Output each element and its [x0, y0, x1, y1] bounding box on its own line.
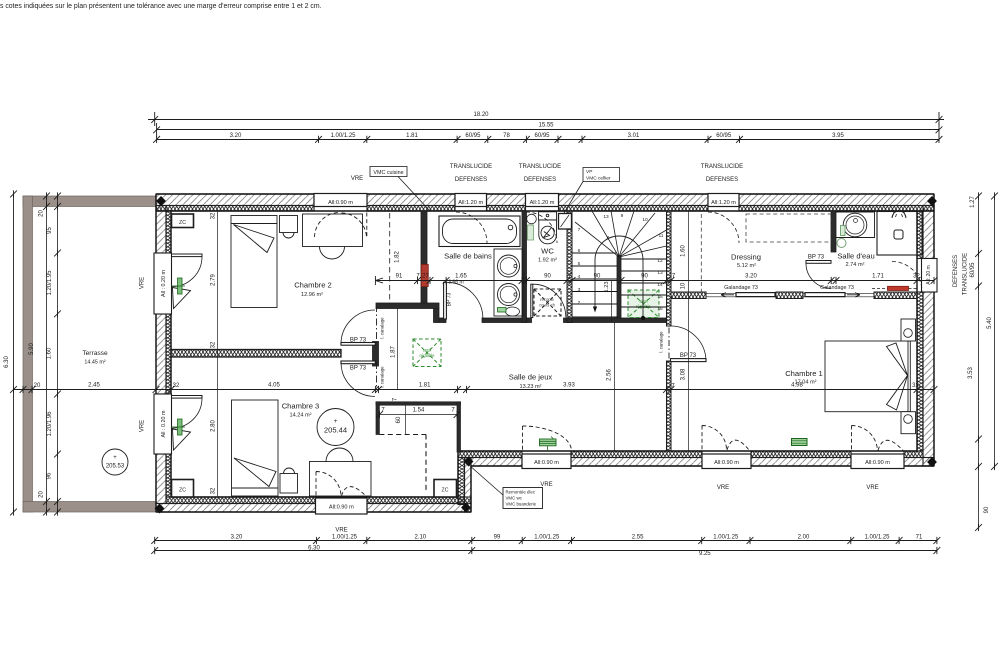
svg-text:Salle d'eau: Salle d'eau — [837, 252, 874, 261]
svg-text:ZC: ZC — [179, 220, 186, 226]
svg-text:95: 95 — [47, 227, 53, 234]
svg-text:All:1.20 m: All:1.20 m — [711, 200, 736, 206]
svg-text:20: 20 — [34, 383, 41, 389]
svg-text:1.71: 1.71 — [872, 274, 884, 280]
svg-text:5.12 m²: 5.12 m² — [737, 263, 756, 269]
svg-text:8: 8 — [607, 235, 610, 241]
svg-text:1.54: 1.54 — [413, 408, 425, 414]
svg-text:3.93: 3.93 — [563, 383, 575, 389]
svg-text:60/95: 60/95 — [465, 133, 481, 139]
svg-text:DEFENSES: DEFENSES — [455, 177, 487, 183]
svg-text:Salle de bains: Salle de bains — [444, 252, 492, 261]
svg-text:Remontée élec: Remontée élec — [506, 490, 536, 495]
svg-text:1.20/1.95: 1.20/1.95 — [47, 270, 53, 296]
svg-text:1.23: 1.23 — [604, 282, 610, 293]
svg-text:32: 32 — [211, 341, 217, 348]
svg-text:20: 20 — [39, 491, 45, 498]
svg-text:All:1.20 m: All:1.20 m — [458, 200, 483, 206]
svg-text:6.30: 6.30 — [4, 356, 10, 368]
svg-text:15.55: 15.55 — [538, 123, 554, 129]
svg-text:Chambre 1: Chambre 1 — [785, 369, 823, 378]
svg-text:ZC: ZC — [179, 488, 186, 494]
svg-text:13: 13 — [603, 214, 609, 220]
svg-text:10: 10 — [642, 217, 648, 223]
svg-text:1.00/1.25: 1.00/1.25 — [330, 133, 356, 139]
svg-text:TRANSLUCIDE: TRANSLUCIDE — [519, 164, 561, 170]
svg-text:TRANSLUCIDE: TRANSLUCIDE — [701, 164, 743, 170]
svg-text:32: 32 — [913, 274, 920, 280]
svg-text:1.82: 1.82 — [395, 251, 401, 263]
svg-text:90: 90 — [594, 274, 601, 280]
svg-text:réglable: réglable — [636, 304, 652, 309]
svg-text:VRE: VRE — [866, 485, 878, 491]
svg-text:91: 91 — [396, 274, 403, 280]
svg-text:All:0.90 m: All:0.90 m — [534, 460, 559, 466]
svg-text:All : 0.20 m: All : 0.20 m — [161, 270, 167, 297]
svg-text:réglable: réglable — [420, 353, 436, 358]
svg-text:VMC buanderie: VMC buanderie — [506, 502, 537, 507]
svg-text:1.00/1.25: 1.00/1.25 — [534, 535, 560, 541]
svg-text:5.40: 5.40 — [987, 317, 993, 329]
svg-text:13: 13 — [657, 270, 663, 276]
svg-text:3.95: 3.95 — [832, 133, 844, 139]
svg-text:14: 14 — [657, 282, 663, 288]
svg-text:2.56: 2.56 — [607, 369, 613, 381]
svg-text:3.20: 3.20 — [745, 274, 757, 280]
svg-text:60/95: 60/95 — [716, 133, 732, 139]
svg-text:All:0.90 m: All:0.90 m — [865, 460, 890, 466]
svg-text:l. canalage: l. canalage — [380, 366, 385, 388]
svg-text:DEFENSES: DEFENSES — [706, 177, 738, 183]
svg-text:4: 4 — [578, 274, 581, 280]
svg-text:seuil: seuil — [423, 348, 432, 353]
svg-text:All : 0.20 m: All : 0.20 m — [161, 410, 167, 437]
svg-text:3.20: 3.20 — [231, 535, 243, 541]
svg-text:32: 32 — [211, 212, 217, 219]
svg-text:32: 32 — [912, 383, 919, 389]
svg-text:9: 9 — [621, 213, 624, 219]
svg-text:VRE: VRE — [140, 420, 146, 432]
svg-text:12: 12 — [657, 258, 663, 264]
svg-text:1.00/1.25: 1.00/1.25 — [713, 535, 739, 541]
svg-text:l. canalage: l. canalage — [659, 331, 664, 353]
svg-text:DEFENSES: DEFENSES — [953, 255, 959, 287]
svg-text:VP: VP — [586, 169, 592, 175]
svg-text:3.66 m: 3.66 m — [448, 280, 463, 286]
svg-text:2.10: 2.10 — [414, 535, 426, 541]
svg-text:205.53: 205.53 — [106, 464, 125, 470]
svg-text:VRE: VRE — [335, 528, 347, 534]
svg-text:l. canalage: l. canalage — [380, 317, 385, 339]
svg-text:Galandage 73: Galandage 73 — [724, 285, 758, 291]
svg-text:27: 27 — [422, 274, 429, 280]
svg-text:12.96 m²: 12.96 m² — [301, 292, 323, 298]
svg-text:1.81: 1.81 — [419, 383, 431, 389]
svg-text:9.25: 9.25 — [699, 551, 711, 557]
svg-text:TRANSLUCIDE: TRANSLUCIDE — [963, 253, 969, 295]
svg-text:DEFENSES: DEFENSES — [524, 177, 556, 183]
svg-text:1.00/1.25: 1.00/1.25 — [864, 535, 890, 541]
svg-text:3: 3 — [578, 287, 581, 293]
svg-text:2.79: 2.79 — [211, 274, 217, 286]
svg-text:16: 16 — [657, 306, 663, 312]
svg-text:205.44: 205.44 — [324, 426, 347, 435]
svg-text:20: 20 — [39, 210, 45, 217]
svg-text:5.90: 5.90 — [29, 343, 35, 355]
svg-text:1.92 m²: 1.92 m² — [538, 258, 557, 264]
svg-text:BP 73: BP 73 — [447, 293, 453, 307]
svg-text:5: 5 — [578, 261, 581, 267]
svg-text:90: 90 — [984, 506, 990, 513]
svg-text:2.80: 2.80 — [211, 420, 217, 432]
svg-text:cours ch: cours ch — [539, 303, 555, 308]
svg-text:90: 90 — [641, 274, 648, 280]
svg-text:2: 2 — [578, 300, 581, 306]
svg-text:14.45 m²: 14.45 m² — [84, 360, 105, 366]
svg-text:18.20: 18.20 — [473, 112, 489, 118]
svg-text:3.08: 3.08 — [681, 368, 687, 380]
svg-text:96: 96 — [47, 472, 53, 479]
svg-text:10: 10 — [681, 282, 687, 289]
svg-text:VRE: VRE — [717, 485, 729, 491]
svg-text:2.74 m²: 2.74 m² — [846, 262, 865, 268]
svg-text:TRANSLUCIDE: TRANSLUCIDE — [450, 164, 492, 170]
svg-text:Dressing: Dressing — [731, 253, 761, 262]
svg-text:All:.20 m: All:.20 m — [926, 265, 932, 284]
svg-text:2.55: 2.55 — [632, 535, 644, 541]
svg-text:4.98: 4.98 — [791, 383, 803, 389]
svg-text:1.60: 1.60 — [47, 347, 53, 359]
svg-text:15: 15 — [657, 294, 663, 300]
svg-text:11: 11 — [659, 233, 664, 239]
svg-text:All:1.20 m: All:1.20 m — [530, 200, 555, 206]
svg-text:4.05: 4.05 — [268, 383, 280, 389]
svg-text:7: 7 — [578, 227, 581, 233]
svg-text:VRE: VRE — [140, 277, 146, 289]
svg-text:WC: WC — [541, 247, 554, 256]
svg-text:All:0.90 m: All:0.90 m — [328, 200, 353, 206]
svg-text:1.81: 1.81 — [406, 133, 418, 139]
svg-text:ZC: ZC — [442, 488, 449, 494]
svg-text:1.87: 1.87 — [391, 346, 397, 358]
svg-text:60/95: 60/95 — [970, 262, 976, 278]
svg-text:6.30: 6.30 — [308, 546, 320, 552]
svg-text:BP 73: BP 73 — [808, 255, 825, 261]
svg-text:recopie: recopie — [540, 297, 554, 302]
svg-text:90: 90 — [544, 274, 551, 280]
svg-text:VMC wc: VMC wc — [506, 496, 523, 501]
svg-text:2.45: 2.45 — [88, 383, 100, 389]
svg-text:Chambre 3: Chambre 3 — [282, 402, 320, 411]
svg-text:71: 71 — [916, 535, 923, 541]
svg-text:32: 32 — [211, 487, 217, 494]
svg-text:1.00/1.25: 1.00/1.25 — [332, 535, 358, 541]
svg-text:32: 32 — [173, 383, 180, 389]
svg-text:14.24 m²: 14.24 m² — [289, 413, 311, 419]
svg-text:BP 73: BP 73 — [350, 338, 367, 344]
svg-text:All:0.90 m: All:0.90 m — [329, 505, 354, 511]
svg-text:Chambre 2: Chambre 2 — [294, 281, 332, 290]
svg-text:1.60: 1.60 — [681, 245, 687, 257]
svg-text:1.20/1.96: 1.20/1.96 — [47, 411, 53, 437]
svg-text:2.00: 2.00 — [798, 535, 810, 541]
svg-text:99: 99 — [494, 535, 501, 541]
svg-text:3.01: 3.01 — [628, 133, 640, 139]
svg-text:Terrasse: Terrasse — [82, 350, 108, 357]
svg-text:1.27: 1.27 — [970, 196, 976, 208]
svg-text:VMC cellier: VMC cellier — [586, 176, 611, 182]
svg-text:6: 6 — [578, 248, 581, 254]
svg-text:60: 60 — [396, 416, 402, 423]
svg-text:3.20: 3.20 — [230, 133, 242, 139]
svg-text:All:0.90 m: All:0.90 m — [714, 460, 739, 466]
svg-text:VRE: VRE — [351, 176, 363, 182]
svg-text:+: + — [334, 418, 338, 425]
svg-text:BP 73: BP 73 — [350, 366, 367, 372]
svg-text:3.53: 3.53 — [968, 367, 974, 379]
svg-text:78: 78 — [503, 133, 510, 139]
svg-text:VMC cuisine: VMC cuisine — [373, 170, 403, 176]
svg-text:60/95: 60/95 — [534, 133, 550, 139]
svg-text:+: + — [113, 455, 117, 461]
svg-text:Salle de jeux: Salle de jeux — [509, 373, 553, 382]
svg-text:s cotes indiquées sur le plan: s cotes indiquées sur le plan présentent… — [0, 3, 322, 10]
svg-text:seuil: seuil — [639, 299, 648, 304]
